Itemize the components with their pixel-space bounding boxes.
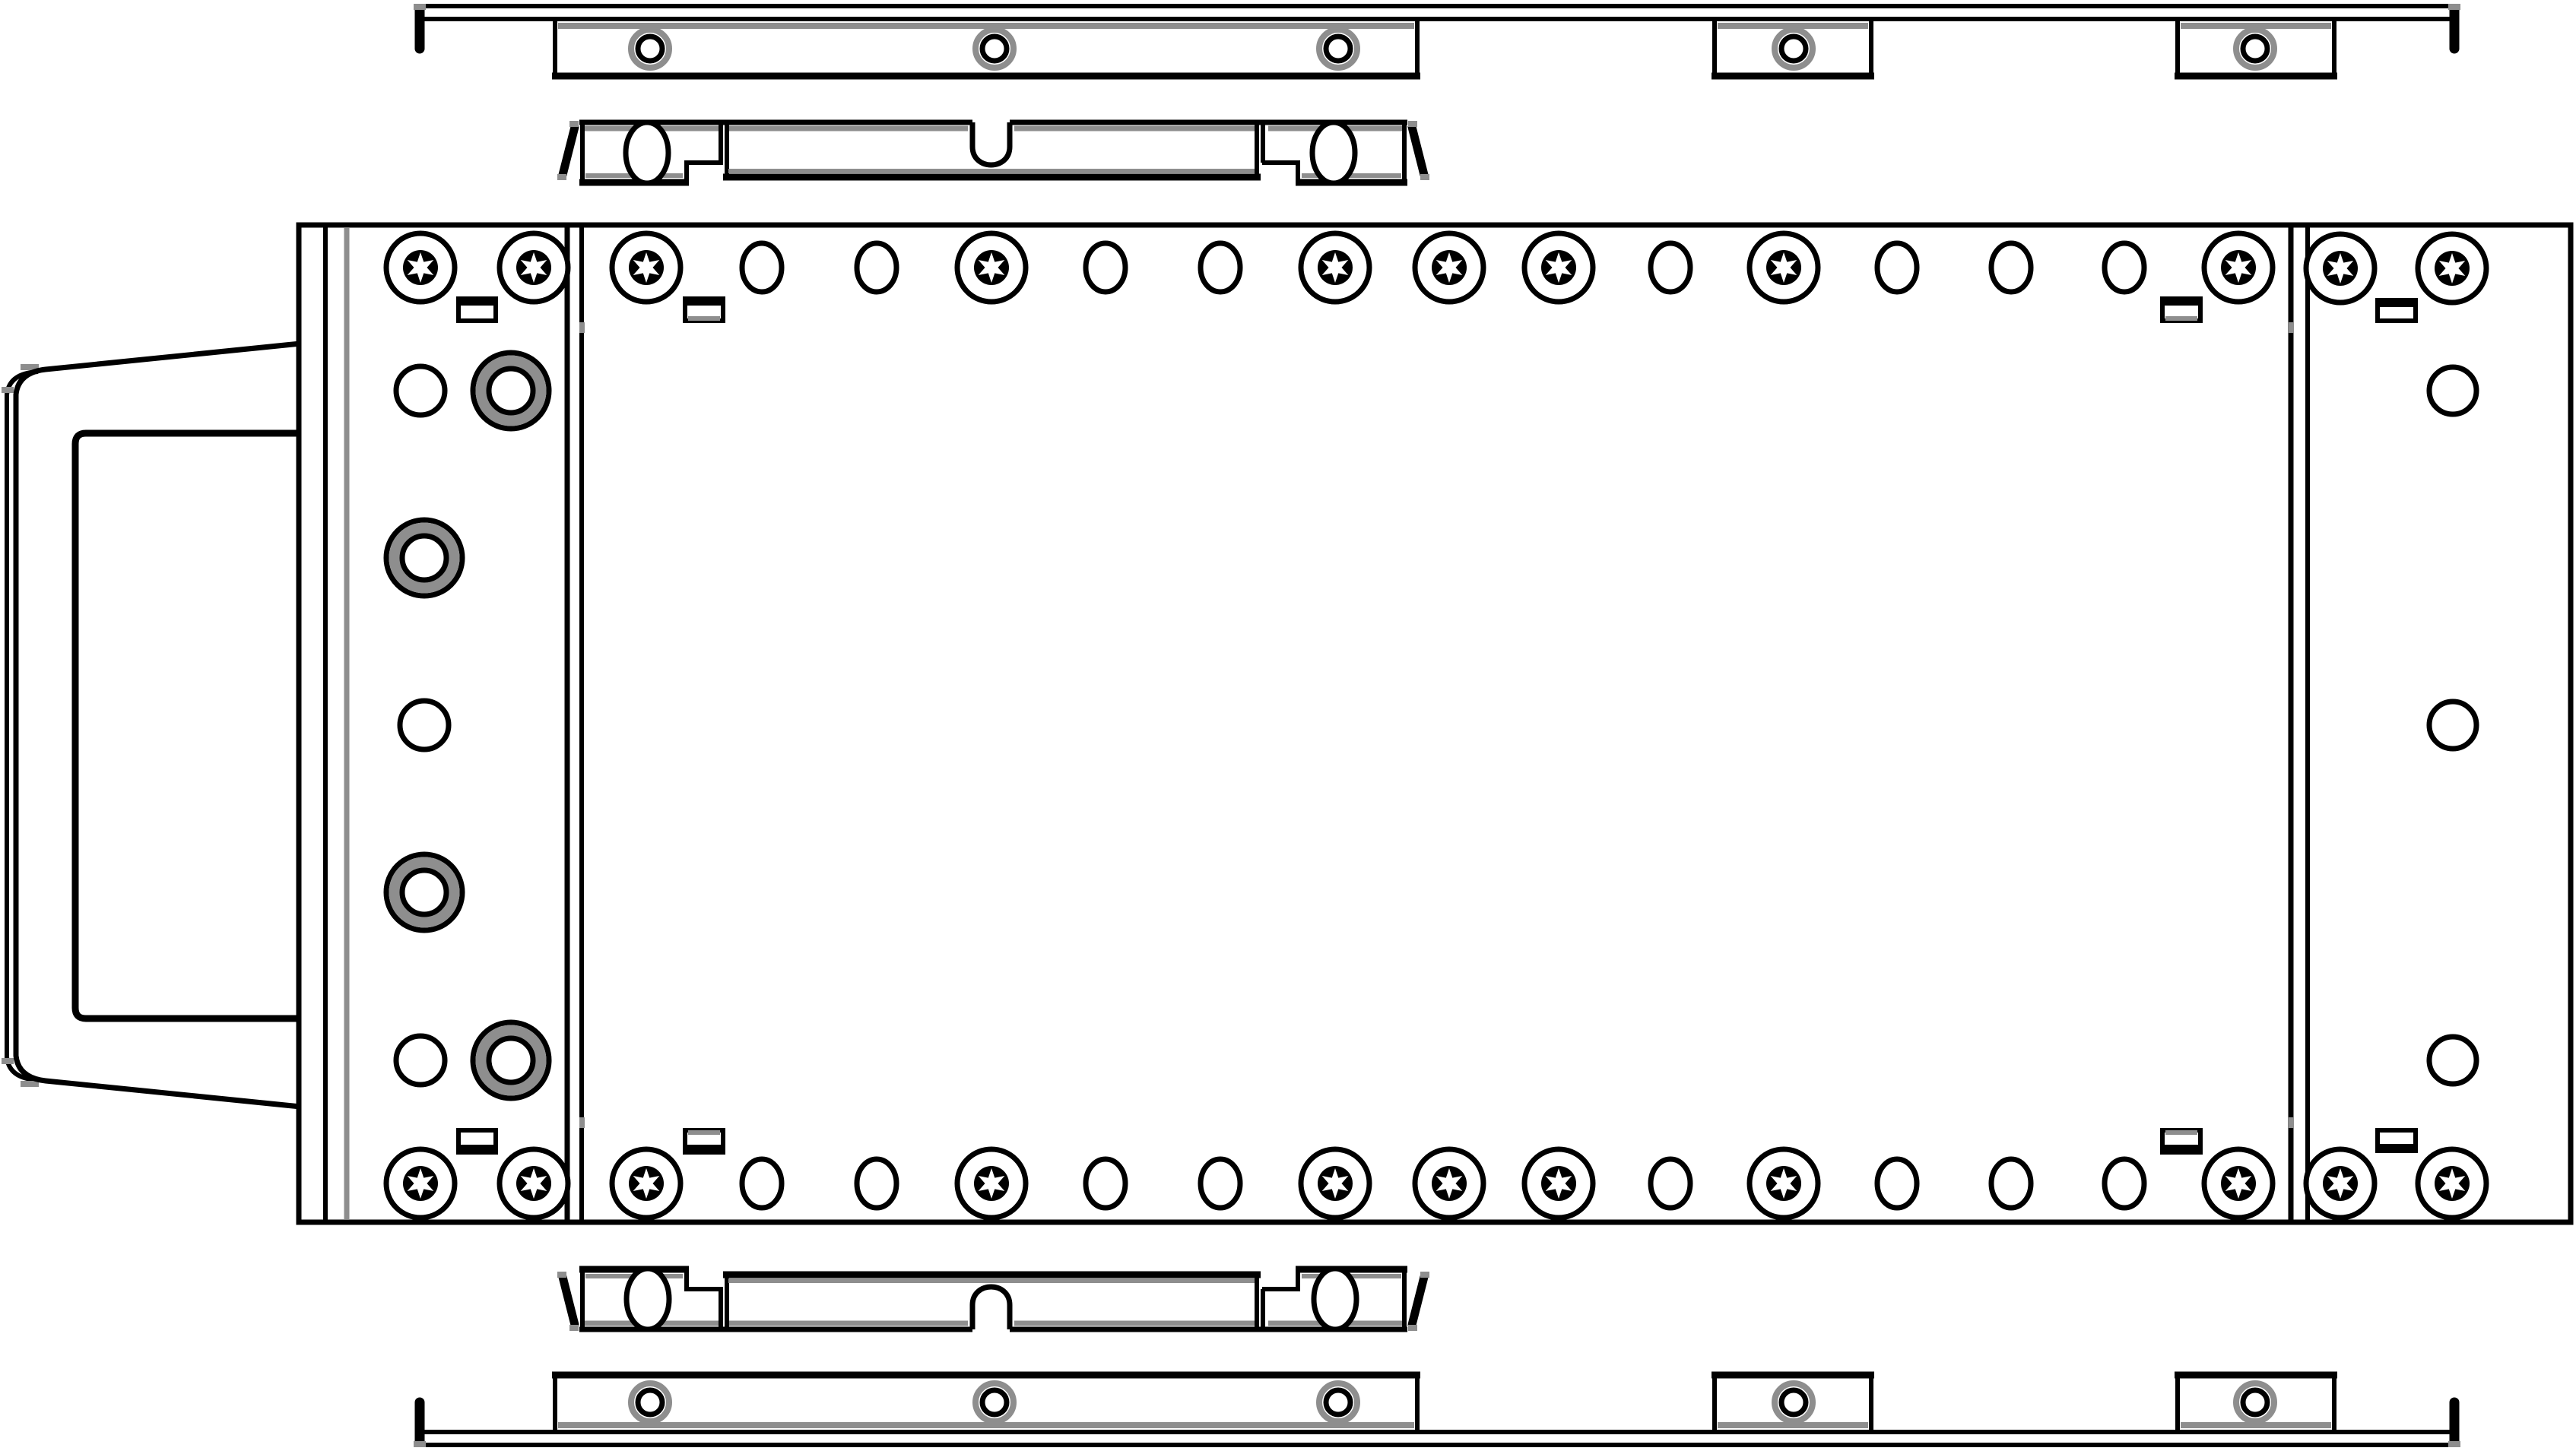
left-panel-screw-bottom-1-torx-screw-icon (386, 1149, 455, 1218)
center-hole-bottom-7 (1991, 1159, 2031, 1208)
top-rail-grommet-5-grommet-icon (2236, 30, 2274, 68)
bottom-bracket-mid-notch (972, 1287, 1010, 1329)
center-screw-top-6-torx-screw-icon (1750, 233, 1818, 302)
bottom-rail-grommet-3-grommet-icon (1319, 1383, 1357, 1421)
center-hole-top-6 (1877, 243, 1917, 292)
left-panel-screw-top-2-torx-screw-icon (500, 233, 568, 302)
center-hole-bottom-3 (1086, 1159, 1125, 1208)
top-bracket-right-hole (1312, 122, 1355, 183)
left-panel-hole-1 (396, 366, 445, 415)
center-hole-bottom-5 (1651, 1159, 1690, 1208)
top-bracket-left-leg-tip-a (569, 121, 579, 127)
center-screw-bottom-5-torx-screw-icon (1524, 1149, 1593, 1218)
top-bracket-left-leg-tip-b (557, 174, 566, 180)
top-bracket-left-leg (563, 127, 575, 175)
right-panel-hole-2 (2429, 702, 2476, 749)
bottom-bracket-left-leg-tip-a (569, 1325, 579, 1331)
center-screw-bottom-2-torx-screw-icon (957, 1149, 1026, 1218)
center-screw-bottom-7-torx-screw-icon (2204, 1149, 2273, 1218)
left-panel-grommet-1-grommet-icon (473, 353, 549, 429)
right-panel-hole-3 (2429, 1037, 2476, 1084)
drawing-canvas (0, 0, 2576, 1451)
bezel-outer-cap (7, 372, 38, 1080)
top-bracket-mid-notch (972, 122, 1010, 165)
bottom-bracket-right-leg-tip-a (1408, 1325, 1417, 1331)
top-rail-grommet-1-grommet-icon (631, 30, 669, 68)
center-screw-top-1-torx-screw-icon (612, 233, 680, 302)
bezel-outline (16, 344, 300, 1107)
body-right-divider-tick-top (2289, 322, 2294, 333)
left-panel-grommet-4-grommet-icon (473, 1022, 549, 1098)
left-panel-hole-3 (396, 1036, 445, 1085)
bottom-rail-grommet-5-grommet-icon (2236, 1383, 2274, 1421)
bottom-rail-left-hook-tip (414, 1441, 426, 1447)
bottom-bracket-right-hole (1314, 1269, 1356, 1329)
center-hole-bottom-2 (857, 1159, 896, 1208)
bezel-window (75, 433, 300, 1019)
center-hole-top-4 (1201, 243, 1240, 292)
center-hole-bottom-8 (2105, 1159, 2144, 1208)
top-bracket-right-leg (1412, 127, 1424, 175)
center-screw-bottom-4-torx-screw-icon (1415, 1149, 1483, 1218)
center-hole-bottom-4 (1201, 1159, 1240, 1208)
center-hole-top-3 (1086, 243, 1125, 292)
right-panel-hole-1 (2429, 367, 2476, 414)
center-hole-top-8 (2105, 243, 2144, 292)
center-hole-top-7 (1991, 243, 2031, 292)
bottom-rail-grommet-4-grommet-icon (1775, 1383, 1813, 1421)
center-screw-top-5-torx-screw-icon (1524, 233, 1593, 302)
right-panel-screw-top-1-torx-screw-icon (2306, 234, 2375, 303)
center-hole-top-1 (742, 243, 782, 292)
top-rail-left-hook-tip (414, 4, 426, 10)
top-rail-right-hook-tip (2448, 4, 2460, 10)
bottom-rail-grommet-2-grommet-icon (976, 1383, 1014, 1421)
bottom-rail-right-hook-tip (2448, 1441, 2460, 1447)
center-screw-bottom-3-torx-screw-icon (1301, 1149, 1369, 1218)
body-outline (299, 225, 2571, 1222)
top-rail-grommet-3-grommet-icon (1319, 30, 1357, 68)
left-panel-hole-2 (400, 701, 449, 749)
right-panel-screw-top-2-torx-screw-icon (2418, 234, 2486, 303)
center-screw-bottom-1-torx-screw-icon (612, 1149, 680, 1218)
top-rail-grommet-4-grommet-icon (1775, 30, 1813, 68)
top-bracket-right-leg-tip-b (1420, 174, 1429, 180)
center-screw-bottom-6-torx-screw-icon (1750, 1149, 1818, 1218)
bezel-cap-tick-left-bottom (2, 1058, 14, 1064)
bottom-bracket-right-leg (1412, 1277, 1424, 1325)
bottom-bracket-left-hole (627, 1269, 669, 1329)
center-hole-bottom-6 (1877, 1159, 1917, 1208)
center-screw-top-3-torx-screw-icon (1301, 233, 1369, 302)
top-bracket-left-hole (626, 122, 668, 183)
body-right-divider-tick-bottom (2289, 1117, 2294, 1128)
left-panel-grommet-3-grommet-icon (386, 854, 462, 930)
bezel-cap-tick-left-top (2, 387, 14, 393)
center-screw-top-2-torx-screw-icon (957, 233, 1026, 302)
left-panel-screw-bottom-2-torx-screw-icon (500, 1149, 568, 1218)
top-rail-grommet-2-grommet-icon (976, 30, 1014, 68)
bottom-bracket-left-leg (563, 1277, 575, 1325)
center-hole-bottom-1 (742, 1159, 782, 1208)
bottom-bracket-left-leg-tip-b (557, 1272, 566, 1278)
center-screw-top-7-torx-screw-icon (2204, 233, 2273, 302)
center-hole-top-5 (1651, 243, 1690, 292)
right-panel-screw-bottom-1-torx-screw-icon (2306, 1149, 2375, 1218)
right-panel-screw-bottom-2-torx-screw-icon (2418, 1149, 2486, 1218)
top-bracket-right-leg-tip-a (1408, 121, 1417, 127)
body-left-divider-tick-bottom (579, 1117, 585, 1128)
body-left-divider-tick-top (579, 322, 585, 333)
center-screw-top-4-torx-screw-icon (1415, 233, 1483, 302)
technical-drawing (0, 0, 2576, 1451)
center-hole-top-2 (857, 243, 896, 292)
left-panel-screw-top-1-torx-screw-icon (386, 233, 455, 302)
bottom-rail-grommet-1-grommet-icon (631, 1383, 669, 1421)
left-panel-grommet-2-grommet-icon (386, 520, 462, 596)
bottom-bracket-right-leg-tip-b (1420, 1272, 1429, 1278)
